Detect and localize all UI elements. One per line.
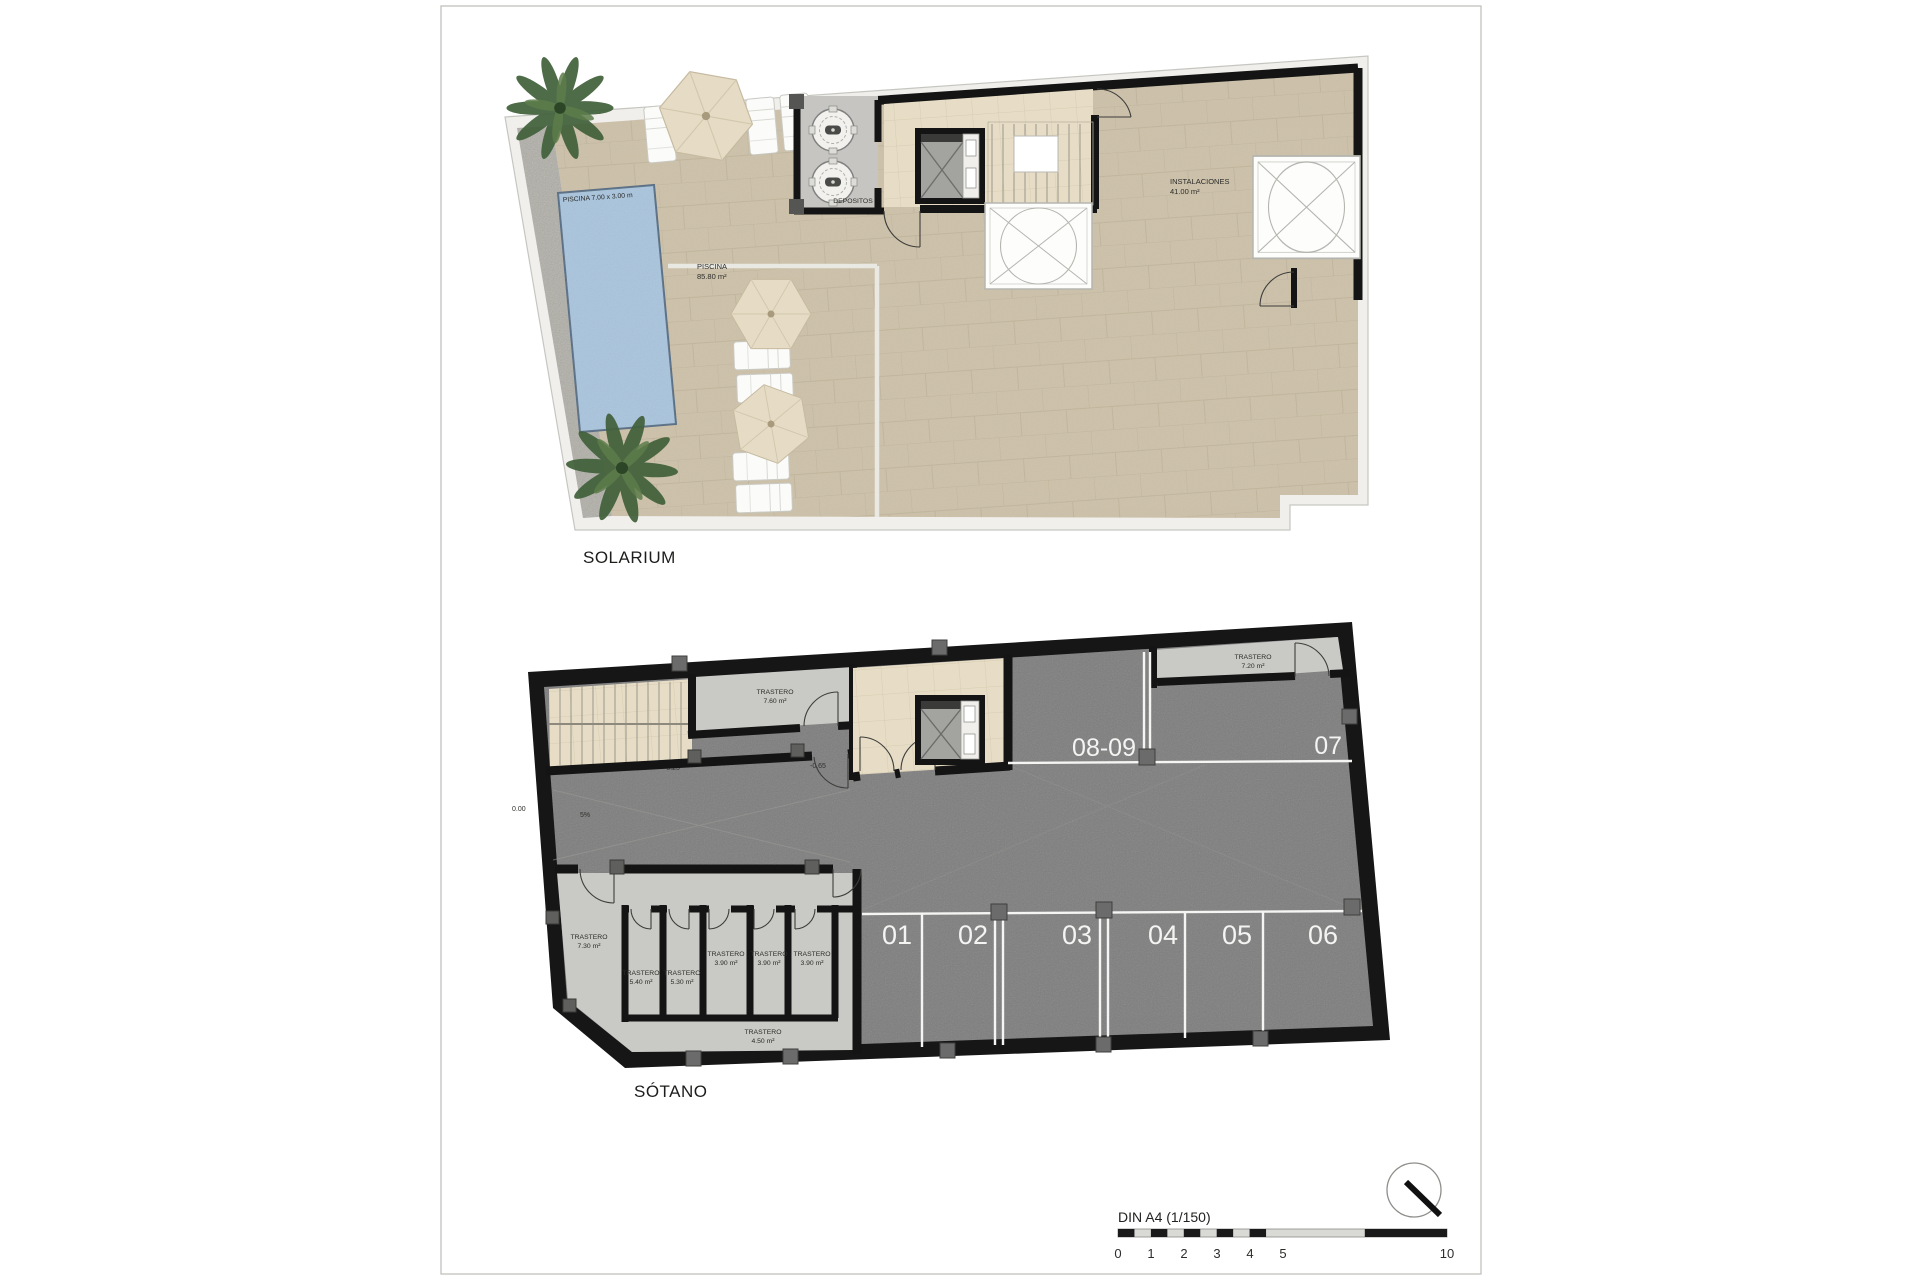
trastero-name: TRASTERO <box>707 951 744 958</box>
pillar <box>791 744 804 757</box>
trastero-name: TRASTERO <box>570 934 607 941</box>
pillar <box>789 94 804 109</box>
sotano-plan: 5% -0.25 -0.65 0.00 TRASTERO 7.60 m² <box>512 610 1400 1101</box>
parking-number-07: 07 <box>1314 732 1342 760</box>
pillar <box>805 860 819 874</box>
elevator <box>915 128 985 204</box>
ramp-slope-label: 5% <box>580 812 590 819</box>
parking-number-06: 06 <box>1308 920 1338 950</box>
parking-number-02: 02 <box>958 920 988 950</box>
tick-4: 4 <box>1246 1246 1253 1261</box>
pillar <box>1096 902 1112 918</box>
pillar <box>789 199 804 214</box>
trastero-name: TRASTERO <box>750 951 787 958</box>
trastero-area: 7.30 m² <box>577 943 601 950</box>
stair-landing <box>1014 136 1058 172</box>
trastero-area: 4.50 m² <box>751 1038 775 1045</box>
tick-5: 5 <box>1279 1246 1286 1261</box>
pillar <box>1344 899 1360 915</box>
parking-number-05: 05 <box>1222 920 1252 950</box>
trastero-area: 3.90 m² <box>714 960 738 967</box>
trastero-area: 7.20 m² <box>1241 663 1265 670</box>
trastero-area: 7.60 m² <box>763 698 787 705</box>
pool-area-name: PISCINA <box>697 262 727 271</box>
pillar <box>991 904 1007 920</box>
trastero-area: 3.90 m² <box>800 960 824 967</box>
basement-stairs <box>549 679 692 768</box>
pillar <box>610 860 624 874</box>
parking-number-0809: 08-09 <box>1072 734 1136 762</box>
depositos-label: DEPOSITOS <box>833 198 873 205</box>
tick-0: 0 <box>1114 1246 1121 1261</box>
basement-corridor <box>853 654 1010 777</box>
parking-number-04: 04 <box>1148 920 1178 950</box>
pillar <box>563 999 576 1012</box>
instalaciones-name: INSTALACIONES <box>1170 177 1229 186</box>
trastero-name: TRASTERO <box>793 951 830 958</box>
trastero-area: 5.40 m² <box>629 979 653 986</box>
trastero-area: 5.30 m² <box>670 979 694 986</box>
trastero-name: TRASTERO <box>756 689 793 696</box>
solarium-title: SOLARIUM <box>583 548 676 567</box>
depositos-room: DEPOSITOS <box>789 94 884 214</box>
level-lower: -0.65 <box>810 763 826 770</box>
pillar <box>1139 749 1155 765</box>
trastero-name: TRASTERO <box>622 970 659 977</box>
floor-plan-drawing: PISCINA 7.00 x 3.00 m PISCINA 85.80 m² D… <box>0 0 1920 1280</box>
trastero-name: TRASTERO <box>1234 654 1271 661</box>
elevator <box>915 695 985 765</box>
skylight-2 <box>1253 156 1360 258</box>
tick-3: 3 <box>1213 1246 1220 1261</box>
parking-number-03: 03 <box>1062 920 1092 950</box>
tick-2: 2 <box>1180 1246 1187 1261</box>
trastero-name: TRASTERO <box>663 970 700 977</box>
trastero-name: TRASTERO <box>744 1029 781 1036</box>
skylight-1 <box>985 203 1092 289</box>
sotano-title: SÓTANO <box>634 1082 708 1101</box>
parking-number-01: 01 <box>882 920 912 950</box>
trastero-area: 3.90 m² <box>757 960 781 967</box>
tick-1: 1 <box>1147 1246 1154 1261</box>
pool-area-value: 85.80 m² <box>697 272 727 281</box>
pillar <box>546 911 559 924</box>
scale-label: DIN A4 (1/150) <box>1118 1209 1211 1225</box>
pillar <box>688 750 701 763</box>
plan-sheet: { "titles": { "solarium": "SOLARIUM", "s… <box>0 0 1920 1280</box>
level-entry: 0.00 <box>512 806 526 813</box>
north-arrow-icon <box>1387 1163 1441 1217</box>
tick-10: 10 <box>1440 1246 1454 1261</box>
instalaciones-area: 41.00 m² <box>1170 187 1200 196</box>
